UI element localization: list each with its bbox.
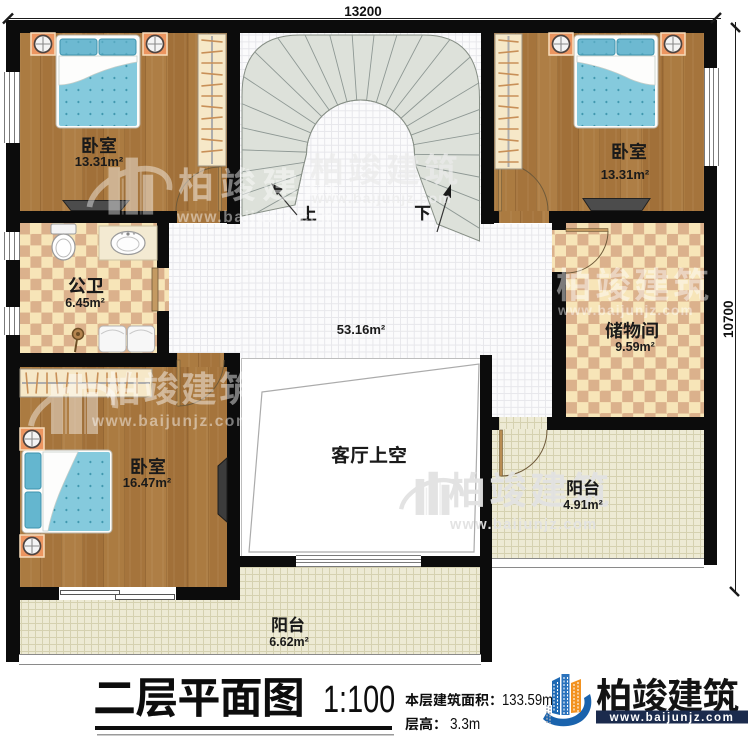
svg-text:www.baijunjz.com: www.baijunjz.com: [609, 712, 735, 724]
svg-text:www.baijunjz.com: www.baijunjz.com: [91, 413, 251, 430]
svg-text:3.3m: 3.3m: [450, 716, 480, 733]
svg-text:9.59m²: 9.59m²: [615, 340, 655, 354]
svg-text:6.45m²: 6.45m²: [65, 296, 105, 310]
svg-text:133.59m: 133.59m: [502, 692, 553, 709]
svg-text:www.baijunjz.com: www.baijunjz.com: [557, 303, 694, 318]
svg-text:www.baijunjz.com: www.baijunjz.com: [176, 209, 336, 226]
svg-text:6.62m²: 6.62m²: [269, 635, 309, 649]
svg-text:www.baijunjz.com: www.baijunjz.com: [311, 190, 452, 206]
svg-text:13.31m²: 13.31m²: [601, 167, 650, 182]
svg-text:53.16m²: 53.16m²: [337, 322, 386, 337]
svg-text:16.47m²: 16.47m²: [123, 475, 172, 490]
svg-text:www.baijunjz.com: www.baijunjz.com: [449, 517, 598, 533]
svg-text:13200: 13200: [344, 4, 382, 19]
svg-text:13.31m²: 13.31m²: [75, 154, 124, 169]
svg-text:4.91m²: 4.91m²: [563, 498, 603, 512]
svg-text:1:100: 1:100: [323, 678, 395, 721]
svg-text:10700: 10700: [721, 300, 736, 338]
